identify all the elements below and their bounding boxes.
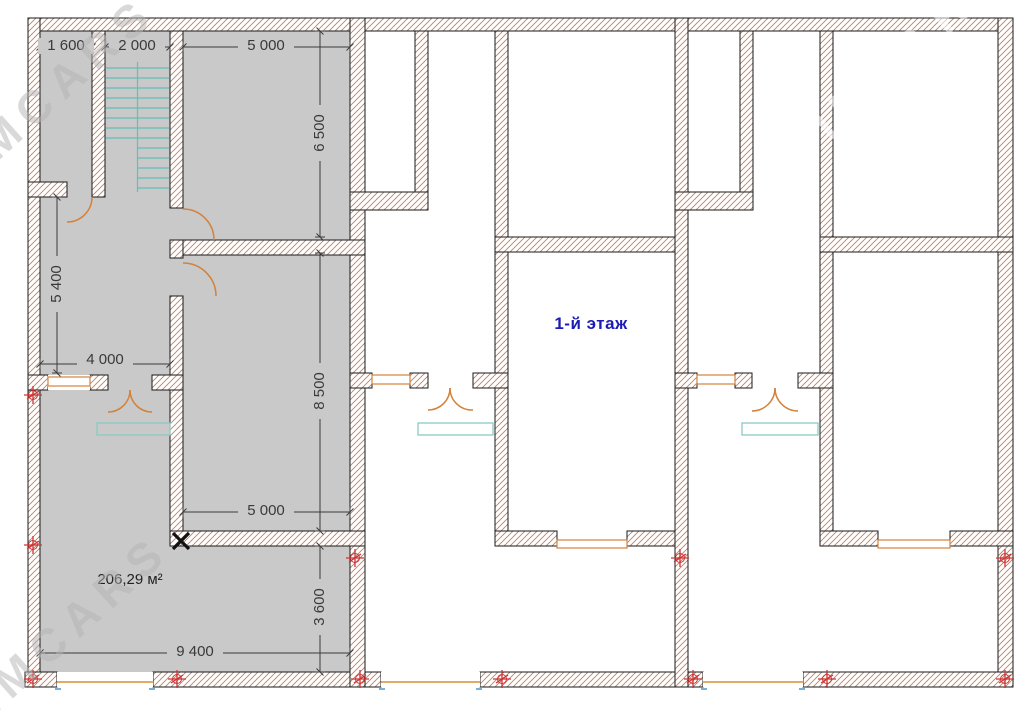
wall-segment [90,375,108,390]
counter [742,423,818,435]
wall-segment [170,531,365,546]
wall-segment [740,31,753,210]
dim-label-3600: 3 600 [312,579,328,635]
wall-segment [798,373,833,388]
wall-segment [28,375,48,390]
dim-label-6500: 6 500 [312,105,328,161]
wall-segment [92,31,105,197]
wall-segment [28,18,1013,31]
wall-segment [735,373,752,388]
wall-segment [480,672,703,687]
window [557,540,627,548]
wall-segment [473,373,508,388]
wall-segment [28,18,40,687]
window [697,375,735,384]
wall-segment [820,531,878,546]
door-arc [775,388,798,411]
wall-segment [950,531,1013,546]
wall-segment [153,672,381,687]
wall-segment [170,240,183,258]
floor-title: 1-й этаж [532,314,650,334]
wall-segment [28,182,67,197]
left-unit-floor [32,22,358,680]
wall-segment [675,373,697,388]
wall-segment [350,192,428,210]
counter [418,423,493,435]
dim-label-5400: 5 400 [49,256,65,312]
dim-label-8500: 8 500 [312,363,328,419]
wall-segment [170,296,183,546]
wall-segment [495,531,557,546]
wall-segment [820,237,1013,252]
door-arc [428,388,450,410]
dim-label-1600: 1 600 [38,38,94,54]
floor-plan: 1 600 2 000 5 000 6 500 5 400 4 000 8 50… [0,0,1036,724]
wall-segment [170,31,183,208]
window [48,377,90,386]
wall-segment [998,18,1013,687]
wall-segment [495,31,508,546]
dim-label-5000-top: 5 000 [238,38,294,54]
wall-segment [820,31,833,546]
wall-segment [350,18,365,687]
dim-label-2000: 2 000 [109,38,165,54]
area-value: 206,29 м² [89,571,171,588]
wall-segment [675,192,753,210]
door-arc [752,388,775,411]
door-arc [450,388,473,410]
wall-segment [350,373,372,388]
wall-segment [183,240,365,255]
wall-segment [152,375,183,390]
wall-segment [410,373,428,388]
wall-segment [675,18,688,687]
window [372,375,410,384]
dim-label-4000: 4 000 [77,352,133,368]
window [878,540,950,548]
floor-plan-canvas [0,0,1036,724]
wall-segment [495,237,688,252]
dim-label-9400: 9 400 [167,644,223,660]
wall-segment [415,31,428,210]
dim-label-5000-mid: 5 000 [238,503,294,519]
